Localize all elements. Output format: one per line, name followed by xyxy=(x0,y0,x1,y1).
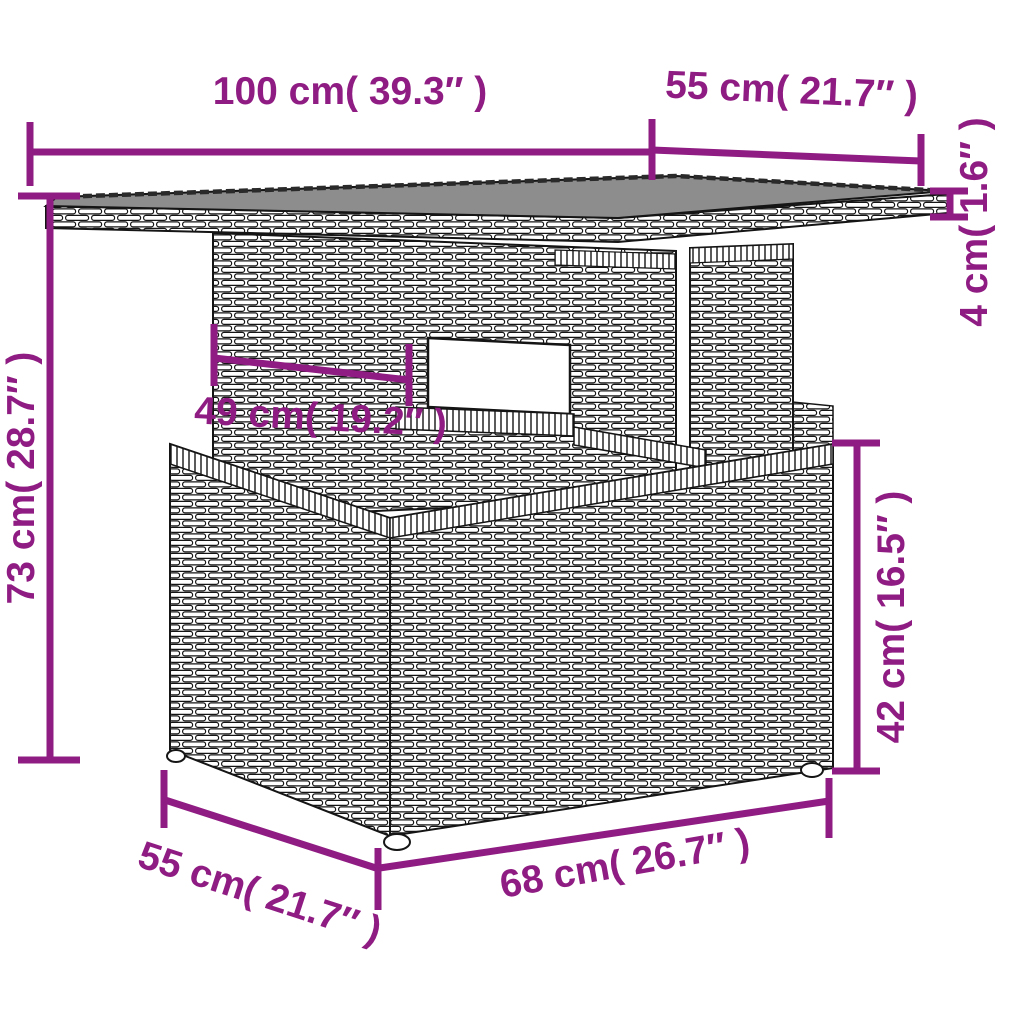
dimension-diagram-page: 100 cm( 39.3″ ) 55 cm( 21.7″ ) 4 cm( 1.6… xyxy=(0,0,1024,1024)
table-foot-right xyxy=(801,763,823,777)
table-illustration xyxy=(46,176,948,850)
label-top-depth: 55 cm( 21.7″ ) xyxy=(664,64,918,118)
label-top-thickness: 4 cm( 1.6″ ) xyxy=(953,117,996,326)
table-foot-front xyxy=(384,834,410,850)
column-top-weave xyxy=(690,244,793,263)
table-foot-left xyxy=(167,750,185,762)
table-dimension-diagram: 100 cm( 39.3″ ) 55 cm( 21.7″ ) 4 cm( 1.6… xyxy=(0,0,1024,1024)
label-base-height: 42 cm( 16.5″ ) xyxy=(870,491,913,744)
dim-line-top-width xyxy=(30,119,652,186)
label-top-width: 100 cm( 39.3″ ) xyxy=(213,70,488,113)
label-base-depth: 55 cm( 21.7″ ) xyxy=(133,834,387,953)
pedestal-right-column xyxy=(690,244,793,484)
pedestal-window-opening xyxy=(428,338,570,414)
pedestal-top-weave xyxy=(555,250,676,269)
label-total-height: 73 cm( 28.7″ ) xyxy=(0,352,43,605)
